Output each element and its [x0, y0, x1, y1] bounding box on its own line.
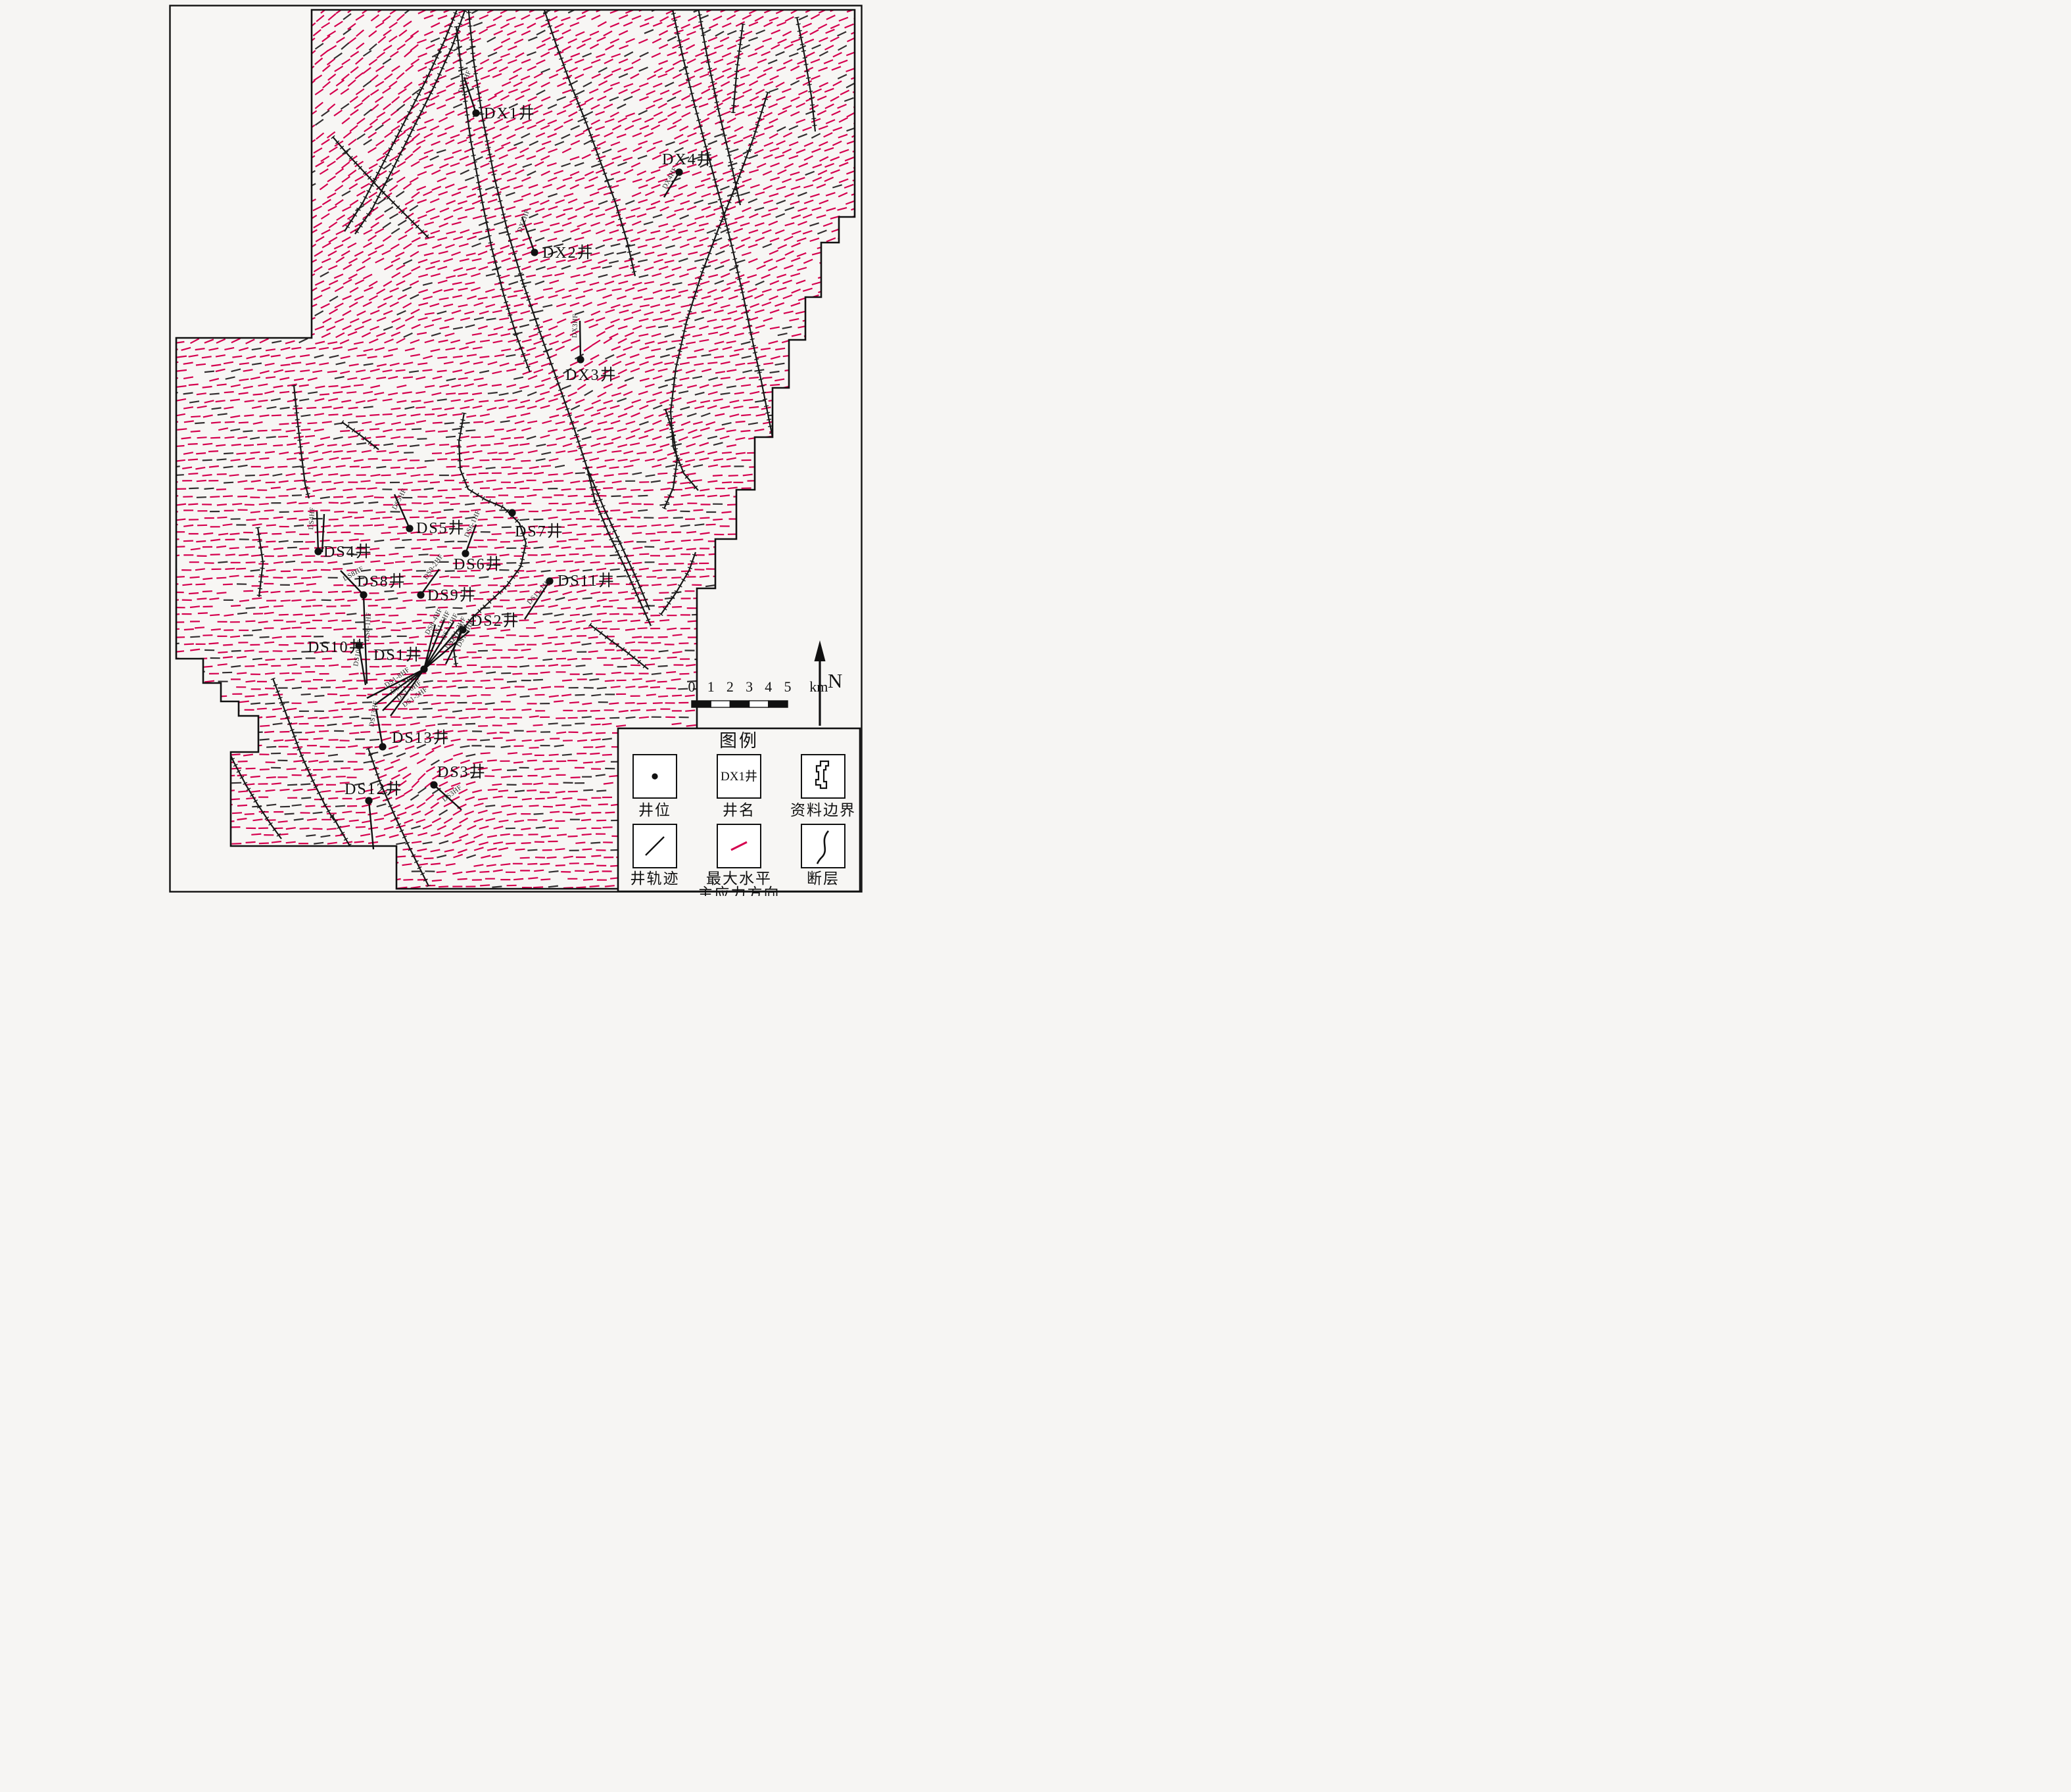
well-name-label: DS7井: [515, 523, 564, 540]
legend-item-label: 最大水平: [706, 870, 772, 887]
scale-bar-segment: [692, 701, 711, 707]
legend-title: 图例: [719, 731, 759, 751]
well-location-dot: [577, 356, 584, 363]
well-name-label: DS11井: [558, 572, 615, 590]
stress-map-canvas: DX1井DX1HFDX2井DX2HFDX3井DX3HFDX4井DX4HFDS4井…: [0, 0, 1035, 896]
well-location-dot: [531, 248, 538, 256]
well-location-dot: [508, 509, 515, 516]
well-name-label: DS9井: [427, 586, 477, 604]
well-name-label: DX4井: [662, 151, 714, 168]
scale-tick-3: 3: [746, 678, 753, 695]
well-location-dot: [420, 665, 427, 672]
well-name-sample: DX1井: [721, 769, 757, 784]
north-label: N: [828, 669, 842, 692]
legend-item-well-location: 井位: [633, 755, 677, 818]
well-location-dot: [430, 781, 437, 788]
legend-item-label: 井位: [638, 802, 671, 818]
well-name-label: DS3井: [437, 763, 487, 781]
legend-item-label: 断层: [807, 870, 840, 887]
legend-item-label: 主应力方向: [698, 885, 780, 896]
legend-item-label: 井轨迹: [631, 870, 680, 887]
legend-item-label: 资料边界: [790, 802, 856, 818]
well-location-dot: [472, 109, 479, 116]
scale-bar-unit: km: [809, 678, 828, 695]
scale-bar-segment: [750, 701, 769, 707]
legend-symbol-box: [801, 824, 845, 868]
well-name-label: DS8井: [357, 573, 406, 590]
legend-item-label: 井名: [723, 802, 755, 818]
well-location-dot: [406, 525, 413, 532]
scale-tick-2: 2: [726, 678, 734, 695]
legend-item-well-name: DX1井井名: [717, 755, 761, 818]
well-name-label: DS13井: [392, 729, 450, 747]
scale-bar-segment: [769, 701, 788, 707]
well-location-dot: [365, 797, 372, 804]
scale-tick-0: 0: [688, 678, 696, 695]
well-name-label: DS1井: [373, 646, 423, 664]
well-name-label: DX2井: [542, 244, 594, 262]
well-name-label: DS12井: [345, 780, 403, 798]
well-location-dot: [417, 591, 424, 598]
well-trajectory-label: DX3HF: [571, 314, 579, 338]
scale-tick-1: 1: [707, 678, 715, 695]
scale-tick-4: 4: [765, 678, 772, 695]
legend-item-well-trajectory: 井轨迹: [631, 824, 680, 887]
stress-map-figure: DX1井DX1HFDX2井DX2HFDX3井DX3HFDX4井DX4HFDS4井…: [0, 0, 1035, 896]
legend: 图例 井位DX1井井名资料边界井轨迹最大水平主应力方向断层: [618, 728, 860, 896]
well-name-label: DX1井: [484, 105, 536, 122]
well-trajectory: [580, 321, 581, 360]
legend-item-fault: 断层: [801, 824, 845, 887]
well-location-dot: [314, 548, 321, 555]
well-location-dot: [360, 591, 367, 598]
well-location-icon: [652, 773, 657, 779]
well-name-label: DS4井: [323, 543, 373, 561]
scale-bar-segment: [711, 701, 730, 707]
well-name-label: DS5井: [416, 519, 465, 537]
scale-tick-5: 5: [784, 678, 792, 695]
well-name-label: DS2井: [471, 612, 520, 630]
well-name-label: DX3井: [565, 366, 617, 384]
well-name-label: DS6井: [454, 555, 503, 573]
scale-bar-segment: [730, 701, 749, 707]
well-location-dot: [379, 743, 386, 750]
